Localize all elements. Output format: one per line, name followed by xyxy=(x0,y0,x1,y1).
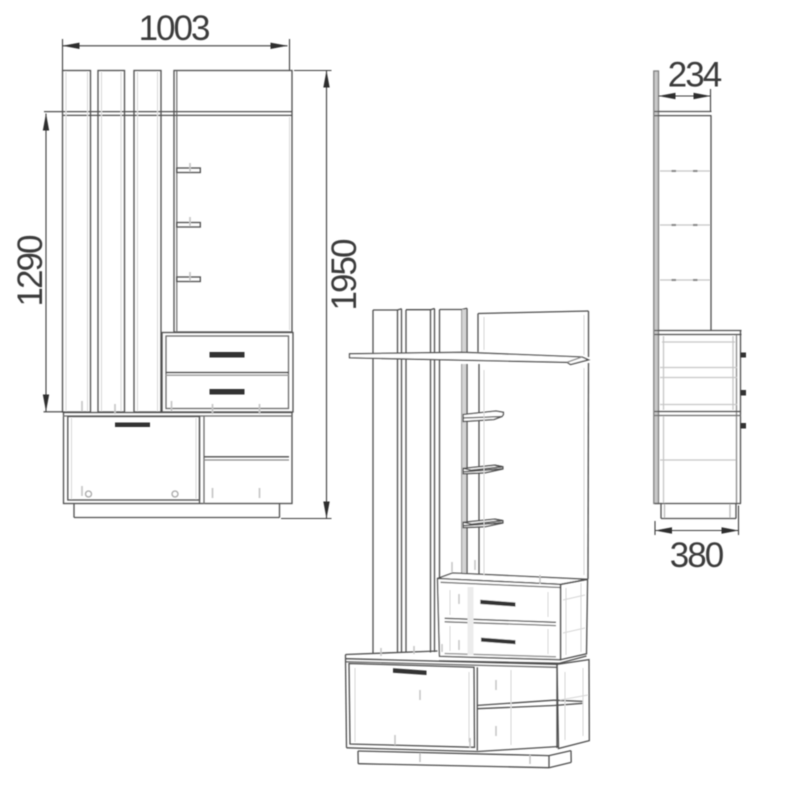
svg-text:234: 234 xyxy=(668,56,722,95)
svg-text:1290: 1290 xyxy=(11,235,50,306)
svg-text:1003: 1003 xyxy=(139,9,209,48)
svg-text:380: 380 xyxy=(670,536,724,575)
svg-text:1950: 1950 xyxy=(325,239,364,310)
